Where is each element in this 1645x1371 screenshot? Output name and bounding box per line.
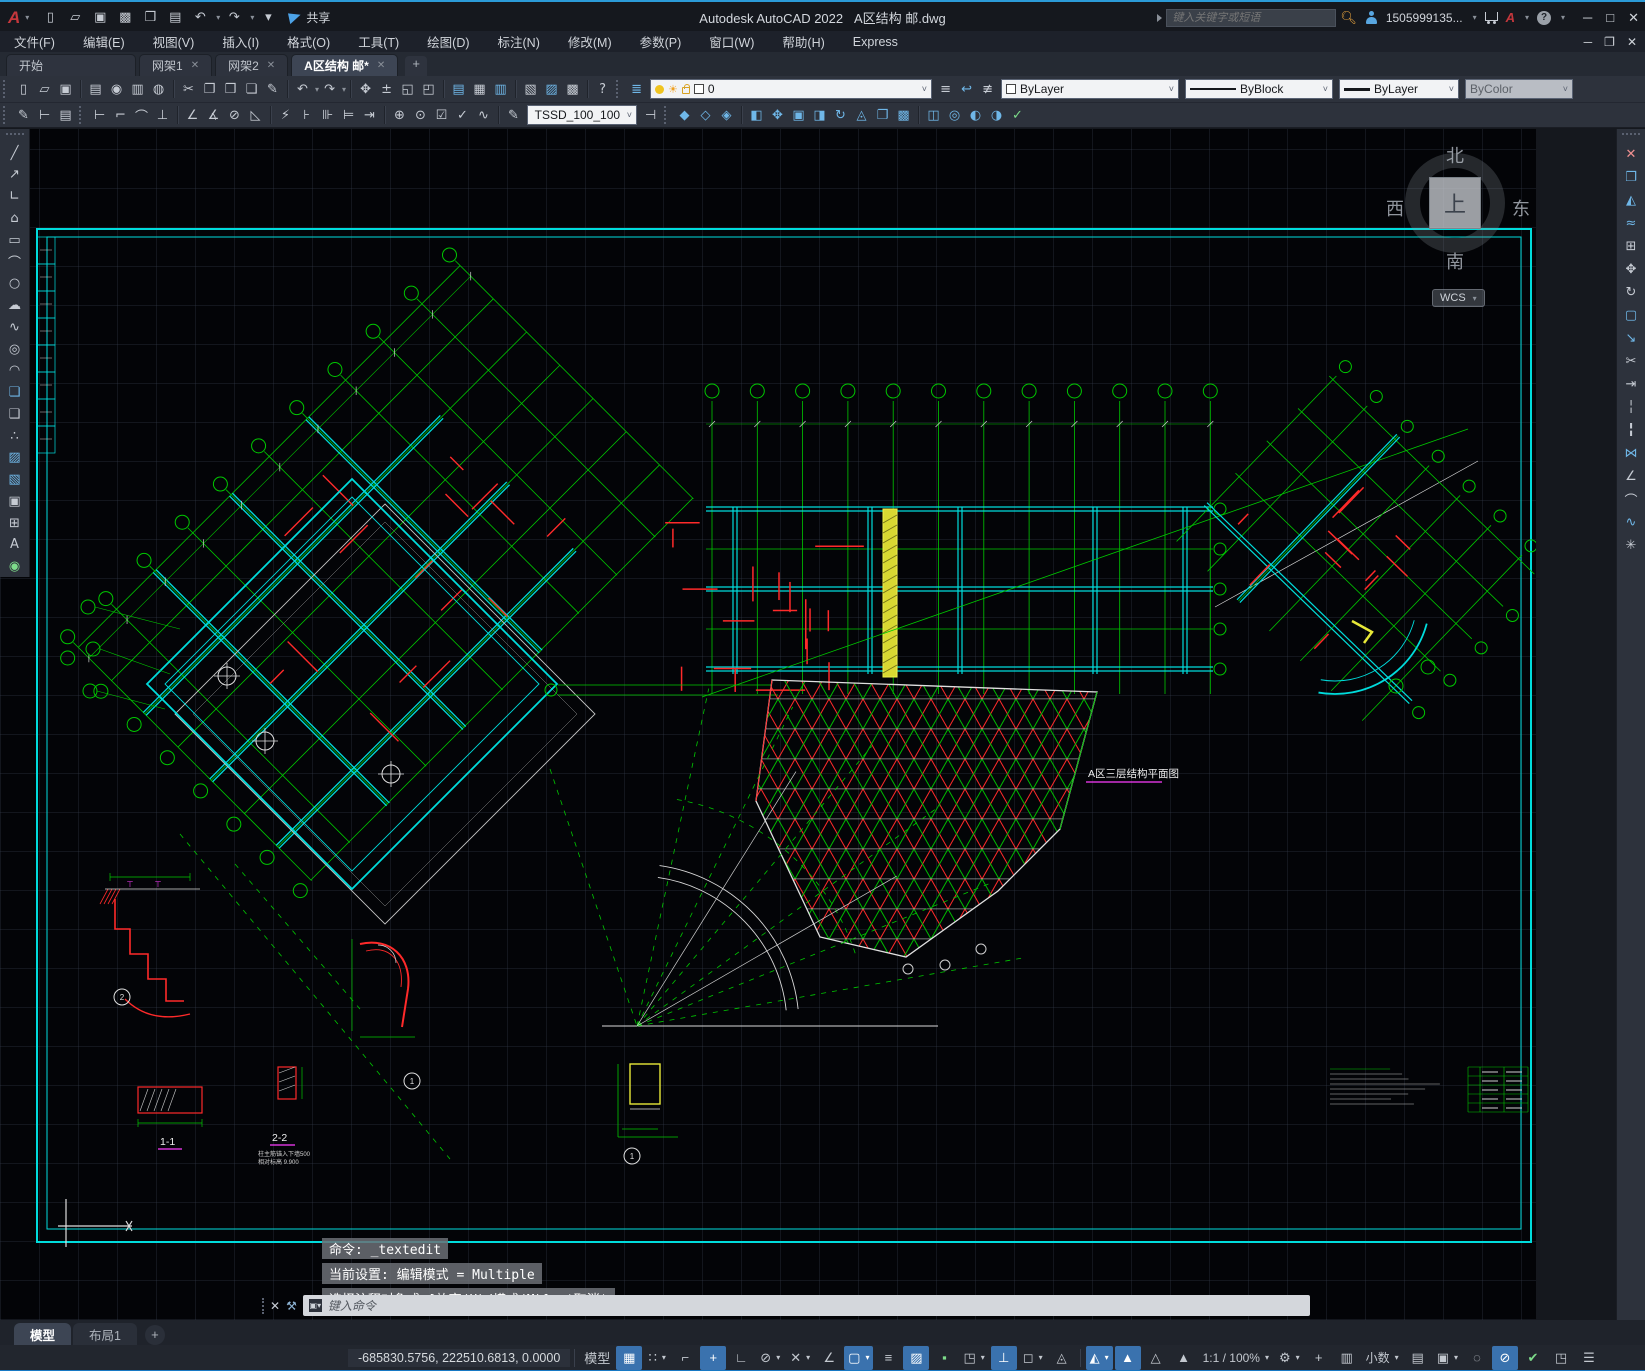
graphics-performance-toggle[interactable]: ✔	[1520, 1346, 1546, 1370]
viewcube-north[interactable]: 北	[1446, 142, 1464, 168]
move-faces-icon[interactable]: ✥	[767, 105, 788, 126]
tool-palettes-icon[interactable]: ▥	[490, 79, 511, 100]
designcenter-icon[interactable]: ▦	[469, 79, 490, 100]
layer-states-icon[interactable]: ↩	[956, 79, 977, 100]
transparency-toggle[interactable]: ▨	[903, 1346, 929, 1370]
taper-faces-icon[interactable]: ◬	[851, 105, 872, 126]
command-input[interactable]: ▣▾ 键入命令	[303, 1295, 1310, 1316]
share-icon	[288, 11, 302, 24]
blend-icon[interactable]: ∿	[1619, 511, 1643, 533]
separator	[380, 105, 389, 125]
extend-icon[interactable]: ⇥	[1619, 373, 1643, 395]
new-tab-button[interactable]: +	[405, 56, 427, 76]
open-web-mobile-icon[interactable]: ❒	[139, 7, 161, 28]
units-value[interactable]: 小数▾	[1362, 1346, 1403, 1370]
modify-toolbar: ✕❐◭≈⊞✥↻▢↘✂⇥╎╏⋈∠⌒∿✳	[1616, 129, 1645, 1320]
viewcube-south[interactable]: 南	[1446, 248, 1464, 274]
plot-icon[interactable]: ▤	[164, 7, 186, 28]
file-tab-bar: 开始网架1✕网架2✕A区结构 邮*✕+	[0, 52, 1645, 76]
infer-constraints-toggle[interactable]: ⌐	[672, 1346, 698, 1370]
array-icon[interactable]: ⊞	[1619, 235, 1643, 257]
ellipse-arc-icon[interactable]: ◠	[3, 360, 27, 381]
color-faces-icon[interactable]: ▩	[893, 105, 914, 126]
help-icon[interactable]: ?	[1537, 11, 1551, 25]
autodesk-app-icon[interactable]: A	[1506, 10, 1515, 25]
wcs-dropdown[interactable]: WCS▾	[1432, 289, 1485, 307]
separator	[583, 79, 592, 99]
menu-item-7[interactable]: 标注(N)	[484, 31, 554, 52]
offset-icon[interactable]: ≈	[1619, 212, 1643, 234]
check-icon[interactable]: ✓	[1007, 105, 1028, 126]
publish-icon[interactable]: ◍	[148, 79, 169, 100]
dim-inspect-icon[interactable]: ☑	[431, 105, 452, 126]
union-icon[interactable]: ◆	[674, 105, 695, 126]
save-icon[interactable]: ▣	[55, 79, 76, 100]
lock-ui-toggle[interactable]: ▣▾	[1433, 1346, 1462, 1370]
close-icon[interactable]: ✕	[267, 60, 275, 71]
separator	[439, 79, 448, 99]
separator	[169, 79, 178, 99]
dim-ordinate-icon[interactable]: ⊥	[152, 105, 173, 126]
circle-icon[interactable]: ○	[3, 273, 27, 294]
autocad-window: A ▾ ▯▱▣▩❒▤↶▾↷▾▾ 共享 Autodesk AutoCAD 2022…	[0, 0, 1645, 1371]
search-icon[interactable]: 🔍︎	[1340, 10, 1357, 26]
properties-icon[interactable]: ▤	[448, 79, 469, 100]
menu-item-3[interactable]: 插入(I)	[208, 31, 273, 52]
close-button[interactable]: ✕	[1628, 10, 1639, 26]
svg-text:1: 1	[630, 1152, 635, 1161]
layer-properties-icon[interactable]: ≣	[626, 79, 647, 100]
dim-radius-icon[interactable]: ◺	[245, 105, 266, 126]
separator	[76, 79, 85, 99]
copy-icon[interactable]: ❐	[1619, 166, 1643, 188]
zoom-window-icon[interactable]: ◱	[397, 79, 418, 100]
window-title: Autodesk AutoCAD 2022 A区结构 邮.dwg	[699, 8, 945, 27]
layer-on-icon	[655, 85, 664, 94]
account-icon[interactable]	[1365, 11, 1378, 24]
command-placeholder: 键入命令	[328, 1297, 376, 1314]
model-space-button[interactable]: 模型	[580, 1346, 614, 1370]
command-close-icon[interactable]: ✕	[270, 1299, 280, 1313]
extrude-faces-icon[interactable]: ◧	[746, 105, 767, 126]
standard-toolbar: ▯▱▣▤◉▥◍✂❐❒❏✎↶▾↷▾✥±◱◰▤▦▥▧▨▩?≣ ☀ 0 ˅ ≡↩≢ B…	[0, 76, 1645, 103]
polar-tracking-toggle[interactable]: ⊘▾	[756, 1346, 784, 1370]
shell-icon[interactable]: ◑	[986, 105, 1007, 126]
new-icon[interactable]: ▯	[39, 7, 61, 28]
dim-jog-icon[interactable]: ⊨	[338, 105, 359, 126]
break-point-icon[interactable]: ╎	[1619, 396, 1643, 418]
viewcube-west[interactable]: 西	[1386, 195, 1404, 221]
separate-icon[interactable]: ◐	[965, 105, 986, 126]
subtract-icon[interactable]: ◇	[695, 105, 716, 126]
fillet-icon[interactable]: ⌒	[1619, 488, 1643, 510]
separator	[283, 79, 292, 99]
dim-linear-icon[interactable]: ⊢	[89, 105, 110, 126]
draw-toolbar: ╱↗∟⌂▭⌒○☁∿◎◠❏❑∴▨▧▣⊞A◉	[0, 129, 30, 577]
lineweight-combo[interactable]: ByLayer˅	[1339, 79, 1459, 99]
menu-item-12[interactable]: Express	[839, 31, 912, 52]
menu-item-6[interactable]: 绘图(D)	[413, 31, 483, 52]
dim-jogged-icon[interactable]: ∿	[473, 105, 494, 126]
command-history-line-1: 当前设置: 编辑模式 = Multiple	[322, 1263, 542, 1284]
cut-icon[interactable]: ✂	[178, 79, 199, 100]
dim-diameter-icon[interactable]: ⊘	[224, 105, 245, 126]
menu-item-5[interactable]: 工具(T)	[344, 31, 413, 52]
spline-icon[interactable]: ∿	[3, 317, 27, 338]
toolbar-grip[interactable]	[1622, 133, 1640, 139]
dynamic-input-toggle[interactable]: +	[700, 1346, 726, 1370]
text-style-icon[interactable]: ✎	[13, 105, 34, 126]
print-icon[interactable]: ▤	[85, 79, 106, 100]
scale-icon[interactable]: ▢	[1619, 304, 1643, 326]
file-tab-label: 网架2	[228, 57, 259, 74]
undo-icon[interactable]: ↶	[189, 7, 211, 28]
new-layout-button[interactable]: +	[145, 1325, 165, 1345]
delete-faces-icon[interactable]: ◨	[809, 105, 830, 126]
save-as-icon[interactable]: ▩	[114, 7, 136, 28]
layer-color-swatch	[694, 84, 704, 94]
erase-icon[interactable]: ✕	[1619, 143, 1643, 165]
layer-translate-icon[interactable]: ▤	[55, 105, 76, 126]
coordinates-readout: -685830.5756, 222510.6813, 0.0000	[348, 1349, 570, 1367]
imprint-icon[interactable]: ◫	[923, 105, 944, 126]
dim-style-icon[interactable]: ⊢	[34, 105, 55, 126]
doc-minimize-button[interactable]: ─	[1584, 35, 1593, 49]
help-icon[interactable]: ?	[592, 79, 613, 100]
layout-tab-模型[interactable]: 模型	[14, 1323, 71, 1345]
menu-item-4[interactable]: 格式(O)	[273, 31, 344, 52]
dim-break-icon[interactable]: ⇥	[359, 105, 380, 126]
point-icon[interactable]: ∴	[3, 426, 27, 447]
undo-icon[interactable]: ↶	[292, 79, 313, 100]
object-snap-toggle[interactable]: ▢▾	[844, 1346, 873, 1370]
svg-text:⊤: ⊤	[127, 880, 134, 889]
separator	[173, 105, 182, 125]
svg-text:1-1: 1-1	[160, 1136, 175, 1148]
dim-style-combo[interactable]: TSSD_100_100˅	[527, 105, 637, 125]
quickcalc-icon[interactable]: ▩	[562, 79, 583, 100]
dim-angular-icon[interactable]: ∠	[182, 105, 203, 126]
search-expand-icon[interactable]	[1157, 14, 1162, 22]
annotation-monitor-toggle[interactable]: ◭▾	[1086, 1346, 1113, 1370]
markup-icon[interactable]: ▨	[541, 79, 562, 100]
separator	[511, 79, 520, 99]
plotstyle-combo[interactable]: ByColor˅	[1465, 79, 1573, 99]
crosshair-toggle[interactable]: +	[1306, 1346, 1332, 1370]
ortho-toggle[interactable]: ∟	[728, 1346, 754, 1370]
svg-text:2-2: 2-2	[272, 1132, 287, 1144]
mirror-icon[interactable]: ◭	[1619, 189, 1643, 211]
command-row: ✕ ⚒︎ ▣▾ 键入命令	[262, 1294, 1310, 1317]
isolate-objects-toggle[interactable]: ◌	[1464, 1346, 1490, 1370]
quick-access-toolbar: ▯▱▣▩❒▤↶▾↷▾▾	[39, 7, 279, 28]
dim-baseline-icon[interactable]: ⊦	[296, 105, 317, 126]
angle-override-toggle[interactable]: ∠	[816, 1346, 842, 1370]
svg-text:2: 2	[120, 993, 125, 1002]
dim-angular2-icon[interactable]: ∡	[203, 105, 224, 126]
rotate-faces-icon[interactable]: ↻	[830, 105, 851, 126]
account-caret-icon[interactable]: ▾	[1473, 13, 1477, 22]
toolbar-grip[interactable]	[3, 80, 10, 98]
annotation-autoscale-toggle[interactable]: △	[1143, 1346, 1169, 1370]
layer-lock-icon	[682, 87, 690, 94]
drawing-canvas[interactable]: A区三层结构平面图⊤⊤21-12-2柱主筋锚入下墙500相对标高 9.90011	[0, 129, 1536, 1320]
revcloud-icon[interactable]: ☁	[3, 295, 27, 316]
open-icon[interactable]: ▱	[64, 7, 86, 28]
match-properties-icon[interactable]: ✎	[262, 79, 283, 100]
close-icon[interactable]: ✕	[377, 60, 385, 71]
toolbar-grip[interactable]	[6, 133, 24, 139]
rotate-icon[interactable]: ↻	[1619, 281, 1643, 303]
minimize-button[interactable]: ─	[1583, 10, 1592, 26]
separator	[914, 105, 923, 125]
menu-item-1[interactable]: 编辑(E)	[69, 31, 139, 52]
sheet-set-icon[interactable]: ▧	[520, 79, 541, 100]
copy-icon[interactable]: ❐	[199, 79, 220, 100]
toolbar-grip[interactable]	[3, 106, 10, 124]
donut-icon[interactable]: ◉	[3, 556, 27, 577]
doc-restore-button[interactable]: ❐	[1604, 35, 1615, 49]
menu-item-8[interactable]: 修改(M)	[554, 31, 626, 52]
account-name[interactable]: 1505999135...	[1386, 11, 1463, 25]
layer-previous-icon[interactable]: ≡	[935, 79, 956, 100]
help-caret-icon[interactable]: ▾	[1561, 13, 1565, 22]
chevron-down-icon[interactable]: ▾	[216, 13, 220, 22]
document-window-buttons: ─ ❐ ✕	[1584, 31, 1637, 52]
polyline-icon[interactable]: ∟	[3, 186, 27, 207]
menu-item-9[interactable]: 参数(P)	[626, 31, 696, 52]
pan-icon[interactable]: ✥	[355, 79, 376, 100]
search-input[interactable]	[1166, 9, 1336, 27]
chevron-down-icon: ˅	[922, 84, 927, 94]
autocad-logo-icon[interactable]: A	[0, 8, 23, 28]
mtext-icon[interactable]: A	[3, 535, 27, 556]
redo-icon[interactable]: ↷	[223, 7, 245, 28]
redo-icon[interactable]: ↷	[319, 79, 340, 100]
viewcube[interactable]: 北 南 西 东 上	[1392, 140, 1518, 276]
selection-filter-toggle[interactable]: ◻▾	[1019, 1346, 1047, 1370]
save-icon[interactable]: ▣	[89, 7, 111, 28]
open-icon[interactable]: ▱	[34, 79, 55, 100]
svg-text:柱主筋锚入下墙500: 柱主筋锚入下墙500	[258, 1150, 311, 1158]
command-recent-icon[interactable]: ▣▾	[309, 1299, 322, 1312]
zoom-realtime-icon[interactable]: ±	[376, 79, 397, 100]
intersect-icon[interactable]: ◈	[716, 105, 737, 126]
explode-icon[interactable]: ✳	[1619, 534, 1643, 556]
file-tab-1[interactable]: 网架1✕	[139, 54, 212, 76]
layout-tab-bar: 模型布局1+	[0, 1320, 1645, 1345]
new-icon[interactable]: ▯	[13, 79, 34, 100]
menu-bar: 文件(F)编辑(E)视图(V)插入(I)格式(O)工具(T)绘图(D)标注(N)…	[0, 31, 1645, 52]
toolbar-grip[interactable]	[664, 106, 671, 124]
dim-edit-icon[interactable]: ✎	[503, 105, 524, 126]
chevron-down-icon: ▾	[1473, 294, 1477, 303]
layer-isolate-icon[interactable]: ≢	[977, 79, 998, 100]
doc-close-button[interactable]: ✕	[1627, 35, 1637, 49]
polygon-icon[interactable]: ⌂	[3, 208, 27, 229]
menu-item-11[interactable]: 帮助(H)	[768, 31, 838, 52]
dynamic-ucs-toggle[interactable]: ⊥	[991, 1346, 1017, 1370]
viewcube-east[interactable]: 东	[1512, 195, 1530, 221]
insert-block-icon[interactable]: ❏	[3, 382, 27, 403]
object-snap-tracking-toggle[interactable]: ✕▾	[786, 1346, 814, 1370]
paste-icon[interactable]: ❒	[220, 79, 241, 100]
3d-osnap-toggle[interactable]: ◳▾	[959, 1346, 988, 1370]
separator	[346, 79, 355, 99]
gizmo-toggle[interactable]: ◬	[1049, 1346, 1075, 1370]
chevron-down-icon[interactable]: ▾	[250, 13, 254, 22]
annotation-scale-icon[interactable]: ▲	[1171, 1346, 1197, 1370]
maximize-button[interactable]: □	[1606, 10, 1614, 26]
title-bar: A ▾ ▯▱▣▩❒▤↶▾↷▾▾ 共享 Autodesk AutoCAD 2022…	[0, 4, 1645, 31]
gradient-icon[interactable]: ▧	[3, 469, 27, 490]
arc-icon[interactable]: ⌒	[3, 252, 27, 273]
chamfer-icon[interactable]: ∠	[1619, 465, 1643, 487]
svg-text:1: 1	[410, 1077, 415, 1086]
lineweight-toggle[interactable]: ≡	[875, 1346, 901, 1370]
selection-cycling-toggle[interactable]: ▪	[931, 1346, 957, 1370]
file-tab-label: 开始	[19, 57, 43, 74]
table-icon[interactable]: ⊞	[3, 513, 27, 534]
command-grip[interactable]	[262, 1298, 264, 1314]
trim-icon[interactable]: ✂	[1619, 350, 1643, 372]
layer-combo-value: 0	[708, 82, 918, 96]
separator	[737, 105, 746, 125]
make-block-icon[interactable]: ❑	[3, 404, 27, 425]
clean-screen-toggle[interactable]: ◳	[1548, 1346, 1574, 1370]
file-tab-0[interactable]: 开始	[6, 54, 136, 76]
dim-tolerance-icon[interactable]: ⊕	[389, 105, 410, 126]
clean-icon[interactable]: ◎	[944, 105, 965, 126]
app-store-caret-icon[interactable]: ▾	[1525, 13, 1529, 22]
menu-item-2[interactable]: 视图(V)	[139, 31, 209, 52]
command-history-line-0: 命令: _textedit	[322, 1238, 448, 1259]
file-tab-label: 网架1	[152, 57, 183, 74]
styles-dim-toolbar: ✎⊢▤⊢⌐⌒⊥∠∡⊘◺⚡⊦⊪⊨⇥⊕⊙☑✓∿✎ TSSD_100_100˅ ⊣◆◇…	[0, 103, 1645, 128]
dim-continue-icon[interactable]: ⊪	[317, 105, 338, 126]
ellipse-icon[interactable]: ◎	[3, 339, 27, 360]
hardware-acceleration-toggle[interactable]: ⊘	[1492, 1346, 1518, 1370]
batch-plot-icon[interactable]: ▥	[127, 79, 148, 100]
print-preview-icon[interactable]: ◉	[106, 79, 127, 100]
svg-text:A区三层结构平面图: A区三层结构平面图	[1088, 767, 1179, 780]
close-icon[interactable]: ✕	[191, 60, 199, 71]
dim-arc-icon[interactable]: ⌒	[131, 105, 152, 126]
grid-toggle[interactable]: ▦	[616, 1346, 642, 1370]
menu-item-0[interactable]: 文件(F)	[0, 31, 69, 52]
customize-toggle[interactable]: ☰	[1576, 1346, 1602, 1370]
dim-text-edit-icon[interactable]: ⊣	[640, 105, 661, 126]
annotation-scale-value[interactable]: 1:1 / 100%▾	[1199, 1346, 1273, 1370]
store-cart-icon[interactable]	[1485, 12, 1498, 21]
share-label: 共享	[306, 9, 330, 26]
layer-thaw-icon: ☀	[668, 83, 678, 96]
viewcube-top-face[interactable]: 上	[1429, 177, 1481, 229]
dim-aligned-icon[interactable]: ⌐	[110, 105, 131, 126]
toolbar-grip[interactable]	[79, 106, 86, 124]
region-icon[interactable]: ▣	[3, 491, 27, 512]
hatch-icon[interactable]: ▨	[3, 448, 27, 469]
offset-faces-icon[interactable]: ▣	[788, 105, 809, 126]
snap-mode-toggle[interactable]: ∷▾	[644, 1346, 670, 1370]
construction-line-icon[interactable]: ↗	[3, 165, 27, 186]
toolbar-grip[interactable]	[616, 80, 623, 98]
units-icon[interactable]: ▥	[1334, 1346, 1360, 1370]
separator	[494, 105, 503, 125]
svg-text:相对标高 9.900: 相对标高 9.900	[258, 1158, 299, 1166]
linetype-combo[interactable]: ByBlock˅	[1185, 79, 1333, 99]
layer-combo[interactable]: ☀ 0 ˅	[650, 79, 932, 99]
quick-properties-toggle[interactable]: ▤	[1405, 1346, 1431, 1370]
copy-base-icon[interactable]: ❏	[241, 79, 262, 100]
svg-text:⊤: ⊤	[155, 880, 162, 889]
share-button[interactable]: 共享	[289, 9, 330, 26]
zoom-previous-icon[interactable]: ◰	[418, 79, 439, 100]
file-tab-label: A区结构 邮*	[304, 57, 369, 74]
copy-faces-icon[interactable]: ❐	[872, 105, 893, 126]
qat-customize-icon[interactable]: ▾	[257, 7, 279, 28]
status-bar: -685830.5756, 222510.6813, 0.0000 模型 ▦∷▾…	[0, 1345, 1645, 1371]
dim-center-icon[interactable]: ⊙	[410, 105, 431, 126]
command-tools-icon[interactable]: ⚒︎	[286, 1299, 297, 1313]
dim-quick-icon[interactable]: ⚡	[275, 105, 296, 126]
separator	[266, 105, 275, 125]
workspace-switch[interactable]: ⚙▾	[1275, 1346, 1304, 1370]
file-tab-2[interactable]: 网架2✕	[215, 54, 288, 76]
break-icon[interactable]: ╏	[1619, 419, 1643, 441]
move-icon[interactable]: ✥	[1619, 258, 1643, 280]
rectangle-icon[interactable]: ▭	[3, 230, 27, 251]
app-menu-caret-icon[interactable]: ▾	[25, 13, 29, 22]
line-icon[interactable]: ╱	[3, 143, 27, 164]
join-icon[interactable]: ⋈	[1619, 442, 1643, 464]
file-tab-3[interactable]: A区结构 邮*✕	[291, 54, 398, 76]
dim-update-icon[interactable]: ✓	[452, 105, 473, 126]
layout-tab-布局1[interactable]: 布局1	[73, 1323, 137, 1345]
menu-item-10[interactable]: 窗口(W)	[695, 31, 768, 52]
color-combo[interactable]: ByLayer˅	[1001, 79, 1179, 99]
annotation-visibility-toggle[interactable]: ▲	[1115, 1346, 1141, 1370]
stretch-icon[interactable]: ↘	[1619, 327, 1643, 349]
